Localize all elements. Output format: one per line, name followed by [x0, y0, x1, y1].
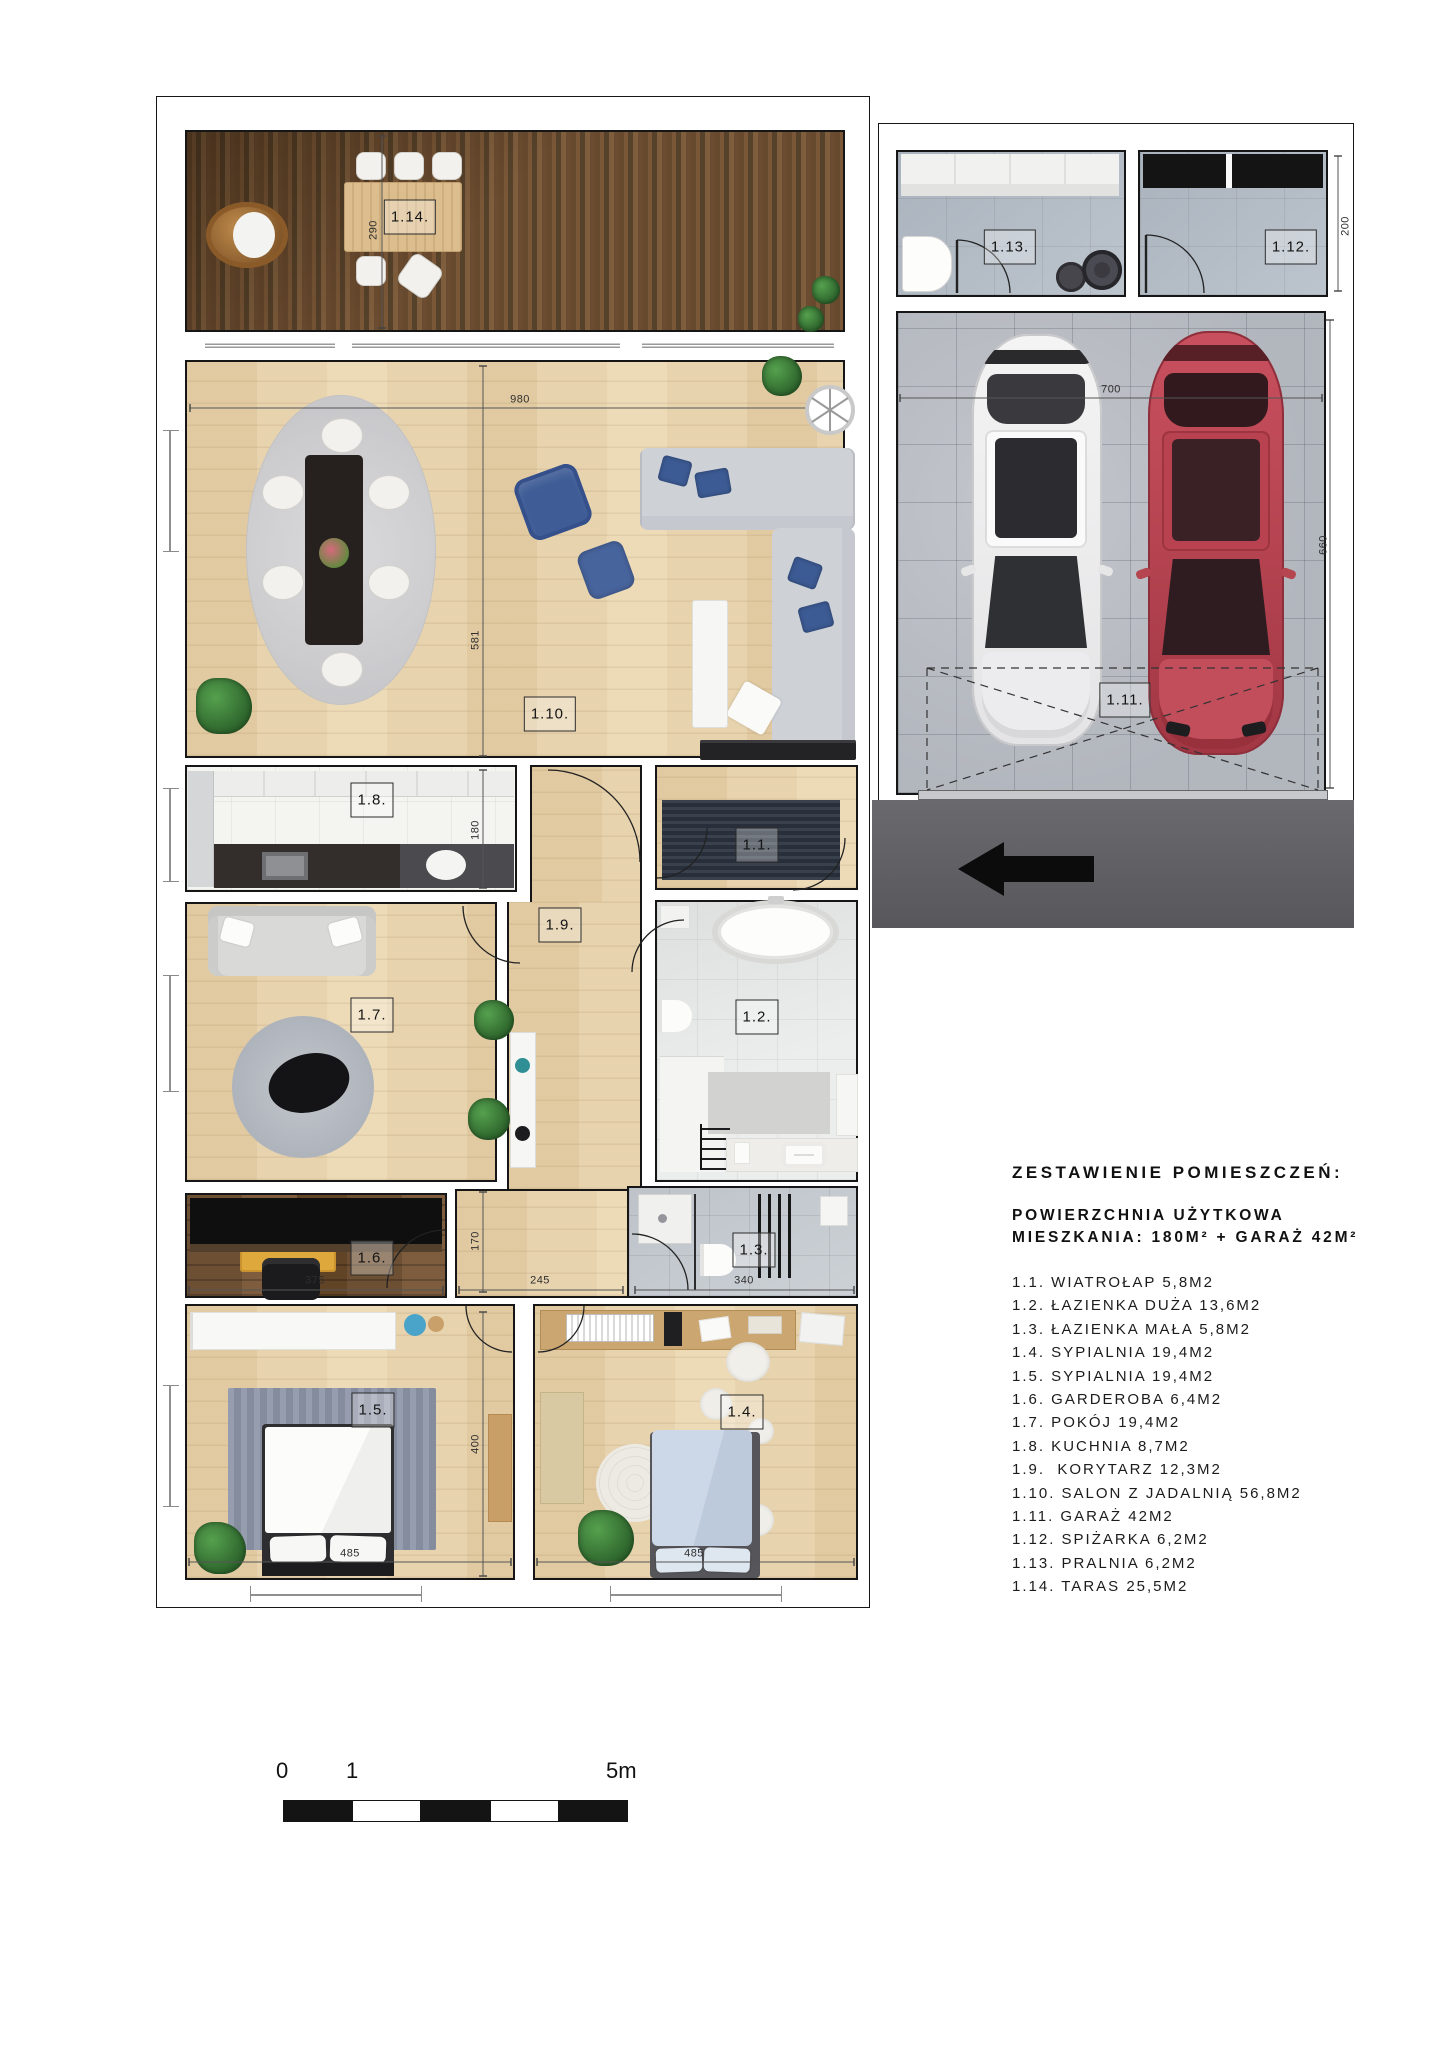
red-car-spoiler — [1158, 345, 1274, 361]
bedroom5-blue-pot — [404, 1314, 426, 1336]
room-label-1-14: 1.14. — [384, 200, 436, 235]
small-bath-sink — [820, 1196, 848, 1226]
white-car-rear-window — [987, 374, 1085, 424]
dim-garage-width: 700 — [1101, 385, 1121, 396]
living-plant — [762, 356, 802, 396]
spizarka-shelving — [1143, 154, 1323, 188]
kitchen-sink — [426, 850, 466, 880]
bedroom4-papers — [699, 1316, 732, 1342]
driveway — [872, 800, 1354, 928]
pralnia-cabinets — [901, 154, 1119, 184]
pralnia-counter — [901, 184, 1119, 196]
room-label-1-6: 1.6. — [350, 1241, 393, 1276]
room-label-1-2: 1.2. — [735, 1000, 778, 1035]
legend-item: 1.14. TARAS 25,5M2 — [1012, 1578, 1302, 1601]
legend-item: 1.12. SPIŻARKA 6,2M2 — [1012, 1531, 1302, 1554]
corridor-plant — [474, 1000, 514, 1040]
pokoj-plant — [468, 1098, 510, 1140]
dim-living-width: 980 — [510, 395, 530, 406]
dim-terrace-depth: 290 — [369, 220, 380, 240]
window-living-left — [163, 430, 179, 552]
room-label-1-8: 1.8. — [350, 783, 393, 818]
bedroom4-duvet — [652, 1430, 752, 1546]
dining-chair — [368, 565, 410, 600]
window-bedroom5-bottom — [250, 1586, 422, 1602]
terrace-chair — [432, 152, 462, 180]
legend-subtitle-line1: POWIERZCHNIA UŻYTKOWA — [1012, 1207, 1285, 1225]
bedroom4-books — [566, 1314, 654, 1342]
bedroom5-headboard — [262, 1562, 394, 1576]
terrace-chair — [356, 256, 386, 286]
room-label-1-3: 1.3. — [732, 1233, 775, 1268]
dining-chair — [368, 475, 410, 510]
scale-segment — [559, 1800, 628, 1822]
dim-garderoba-height: 170 — [471, 1231, 482, 1251]
room-label-1-10: 1.10. — [524, 697, 576, 732]
legend-item: 1.13. PRALNIA 6,2M2 — [1012, 1555, 1302, 1578]
dining-chair — [262, 565, 304, 600]
legend-item: 1.4. SYPIALNIA 19,4M2 — [1012, 1344, 1302, 1367]
bedroom4-side-rug — [540, 1392, 584, 1504]
dim-living-height: 581 — [471, 630, 482, 650]
toilet-small-bath — [700, 1244, 736, 1276]
scale-label-0: 0 — [276, 1758, 288, 1784]
dim-bath-small-width: 340 — [734, 1276, 754, 1287]
room-label-1-4: 1.4. — [720, 1395, 763, 1430]
room-label-1-1: 1.1. — [735, 828, 778, 863]
white-car-windshield — [985, 556, 1087, 648]
bath-tall-cabinet — [836, 1074, 858, 1136]
bedroom5-wardrobe — [488, 1414, 512, 1522]
dim-pantry-height: 200 — [1341, 216, 1352, 236]
legend-item: 1.6. GARDEROBA 6,4M2 — [1012, 1391, 1302, 1414]
scale-segment — [352, 1800, 421, 1822]
scale-segment — [490, 1800, 559, 1822]
red-car-windshield — [1162, 559, 1270, 655]
bathtub — [718, 905, 833, 959]
window-pokoj-left — [163, 975, 179, 1092]
coffee-table — [692, 600, 728, 728]
bedroom4-prints — [799, 1312, 845, 1346]
terrace-chair — [356, 152, 386, 180]
dim-bedroom5-width: 485 — [340, 1549, 360, 1560]
legend-item: 1.11. GARAŻ 42M2 — [1012, 1508, 1302, 1531]
floor-plan-canvas: 1.1. 1.2. 1.3. 1.4. 1.5. 1.6. 1.7. 1.8. … — [0, 0, 1448, 2048]
white-car-sunroof — [995, 438, 1077, 538]
dim-garderoba-width: 375 — [305, 1276, 325, 1287]
bedroom5-duvet — [265, 1427, 391, 1533]
sliding-door-terrace-3 — [642, 341, 834, 351]
corridor-decor-black — [515, 1126, 530, 1141]
bath-shelf — [660, 905, 690, 929]
pralnia-sink — [902, 236, 952, 292]
terrace-plant — [798, 306, 824, 332]
red-car — [1148, 331, 1284, 755]
window-kitchen-left — [163, 788, 179, 882]
legend-subtitle-line2: MIESZKANIA: 180M² + GARAŻ 42M² — [1012, 1229, 1358, 1247]
room-label-1-11: 1.11. — [1099, 683, 1150, 718]
room-label-1-12: 1.12. — [1265, 230, 1317, 265]
dining-chair — [262, 475, 304, 510]
hanging-chair-cushion — [233, 212, 275, 258]
dim-bedroom-height: 400 — [471, 1434, 482, 1454]
terrace-chair — [394, 152, 424, 180]
table-flowers — [319, 538, 349, 568]
bedroom4-pouf — [726, 1342, 770, 1382]
entrance-arrow-shaft — [1002, 856, 1094, 882]
dining-chair — [321, 652, 363, 687]
vanity-towel — [734, 1142, 750, 1164]
kitchen-cooktop — [262, 852, 308, 880]
red-car-hood — [1159, 659, 1273, 749]
garderoba-wardrobe — [190, 1198, 442, 1244]
corridor-decor-teal — [515, 1058, 530, 1073]
garderoba-rail — [190, 1244, 442, 1252]
kitchen-fridge — [188, 771, 214, 887]
scale-segment — [283, 1800, 352, 1822]
white-car-body — [972, 334, 1102, 746]
vanity-sink — [782, 1142, 826, 1168]
legend-item: 1.2. ŁAZIENKA DUŻA 13,6M2 — [1012, 1297, 1302, 1320]
room-label-1-7: 1.7. — [350, 998, 393, 1033]
red-car-rear-window — [1164, 373, 1268, 427]
legend-item: 1.10. SALON Z JADALNIĄ 56,8M2 — [1012, 1485, 1302, 1508]
bedroom5-dresser — [190, 1312, 396, 1350]
shower-glass — [694, 1194, 696, 1290]
bedroom4-tray — [748, 1316, 782, 1334]
bedroom5-stool — [428, 1316, 444, 1332]
bedroom4-desk-speaker — [664, 1312, 682, 1346]
toilet-large-bath — [658, 1000, 692, 1032]
garage-door — [918, 790, 1328, 800]
bedroom4-plant — [578, 1510, 634, 1566]
legend-title: ZESTAWIENIE POMIESZCZEŃ: — [1012, 1163, 1343, 1183]
window-bedroom4-bottom — [610, 1586, 782, 1602]
legend-item: 1.5. SYPIALNIA 19,4M2 — [1012, 1368, 1302, 1391]
legend-item: 1.1. WIATROŁAP 5,8M2 — [1012, 1274, 1302, 1297]
legend-room-list: 1.1. WIATROŁAP 5,8M2 1.2. ŁAZIENKA DUŻA … — [1012, 1274, 1302, 1601]
bathtub-faucet — [768, 896, 784, 904]
shower-drain — [658, 1214, 667, 1223]
room-label-1-13: 1.13. — [984, 230, 1036, 265]
window-bedroom5-left — [163, 1385, 179, 1507]
red-car-sunroof — [1172, 439, 1260, 541]
white-car-spoiler — [980, 350, 1092, 364]
terrace-plant — [812, 276, 840, 304]
room-label-1-5: 1.5. — [351, 1393, 394, 1428]
living-palm — [196, 678, 252, 734]
laundry-basket — [1082, 250, 1122, 290]
dim-bedroom4-width: 485 — [684, 1549, 704, 1560]
dim-kitchen-depth: 180 — [471, 820, 482, 840]
dim-garage-height: 660 — [1319, 535, 1330, 555]
red-car-body — [1148, 331, 1284, 755]
bedroom5-pillow — [270, 1535, 327, 1563]
white-car-hood — [982, 652, 1090, 738]
entrance-arrow-head — [958, 842, 1004, 896]
tv-console — [700, 740, 856, 760]
dining-chair — [321, 418, 363, 453]
corridor-console — [510, 1032, 536, 1168]
legend-item: 1.8. KUCHNIA 8,7M2 — [1012, 1438, 1302, 1461]
sliding-door-terrace-1 — [205, 341, 335, 351]
scale-label-5m: 5m — [606, 1758, 637, 1784]
legend-item: 1.9. KORYTARZ 12,3M2 — [1012, 1461, 1302, 1484]
scale-label-1: 1 — [346, 1758, 358, 1784]
bedroom4-pillow — [704, 1547, 751, 1573]
room-label-1-9: 1.9. — [538, 908, 581, 943]
dim-corridor-width: 245 — [530, 1276, 550, 1287]
scale-segment — [421, 1800, 490, 1822]
legend-item: 1.3. ŁAZIENKA MAŁA 5,8M2 — [1012, 1321, 1302, 1344]
sliding-door-terrace-2 — [352, 341, 620, 351]
legend-item: 1.7. POKÓJ 19,4M2 — [1012, 1414, 1302, 1437]
spizarka-shelf-divider — [1226, 154, 1232, 188]
white-car — [972, 334, 1102, 746]
